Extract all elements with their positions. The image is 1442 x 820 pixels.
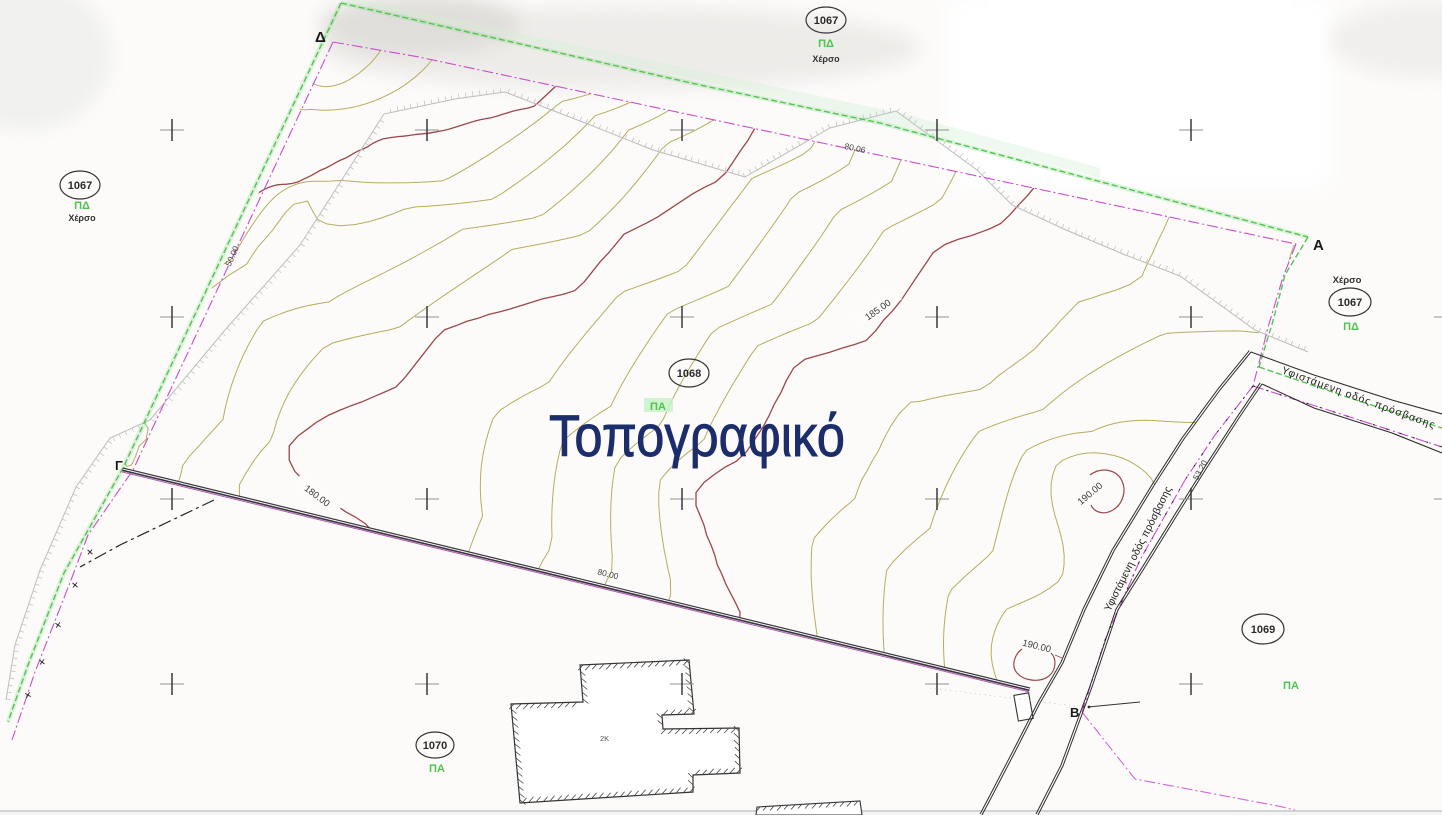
svg-text:ΠΑ: ΠΑ	[1283, 680, 1299, 692]
svg-text:1069: 1069	[1251, 624, 1275, 636]
svg-text:ΠΔ: ΠΔ	[1343, 321, 1359, 333]
svg-text:Τοπογραφικό: Τοπογραφικό	[549, 404, 845, 469]
svg-text:ΠΑ: ΠΑ	[429, 763, 445, 775]
svg-text:ΠΔ: ΠΔ	[818, 38, 834, 50]
svg-text:Δ: Δ	[315, 29, 326, 46]
svg-text:Χέρσο: Χέρσο	[1333, 275, 1362, 286]
svg-text:B: B	[1070, 705, 1079, 720]
svg-text:1068: 1068	[677, 368, 701, 380]
svg-text:1070: 1070	[423, 740, 447, 752]
svg-text:Χέρσο: Χέρσο	[68, 213, 96, 223]
svg-text:ΠΔ: ΠΔ	[74, 200, 90, 212]
svg-text:2Κ: 2Κ	[600, 734, 609, 743]
svg-text:1067: 1067	[1338, 297, 1362, 309]
svg-text:Γ: Γ	[115, 458, 123, 473]
svg-text:A: A	[1313, 237, 1324, 254]
svg-text:1067: 1067	[814, 15, 838, 27]
svg-text:1067: 1067	[68, 180, 92, 192]
svg-text:Χέρσο: Χέρσο	[812, 54, 840, 64]
